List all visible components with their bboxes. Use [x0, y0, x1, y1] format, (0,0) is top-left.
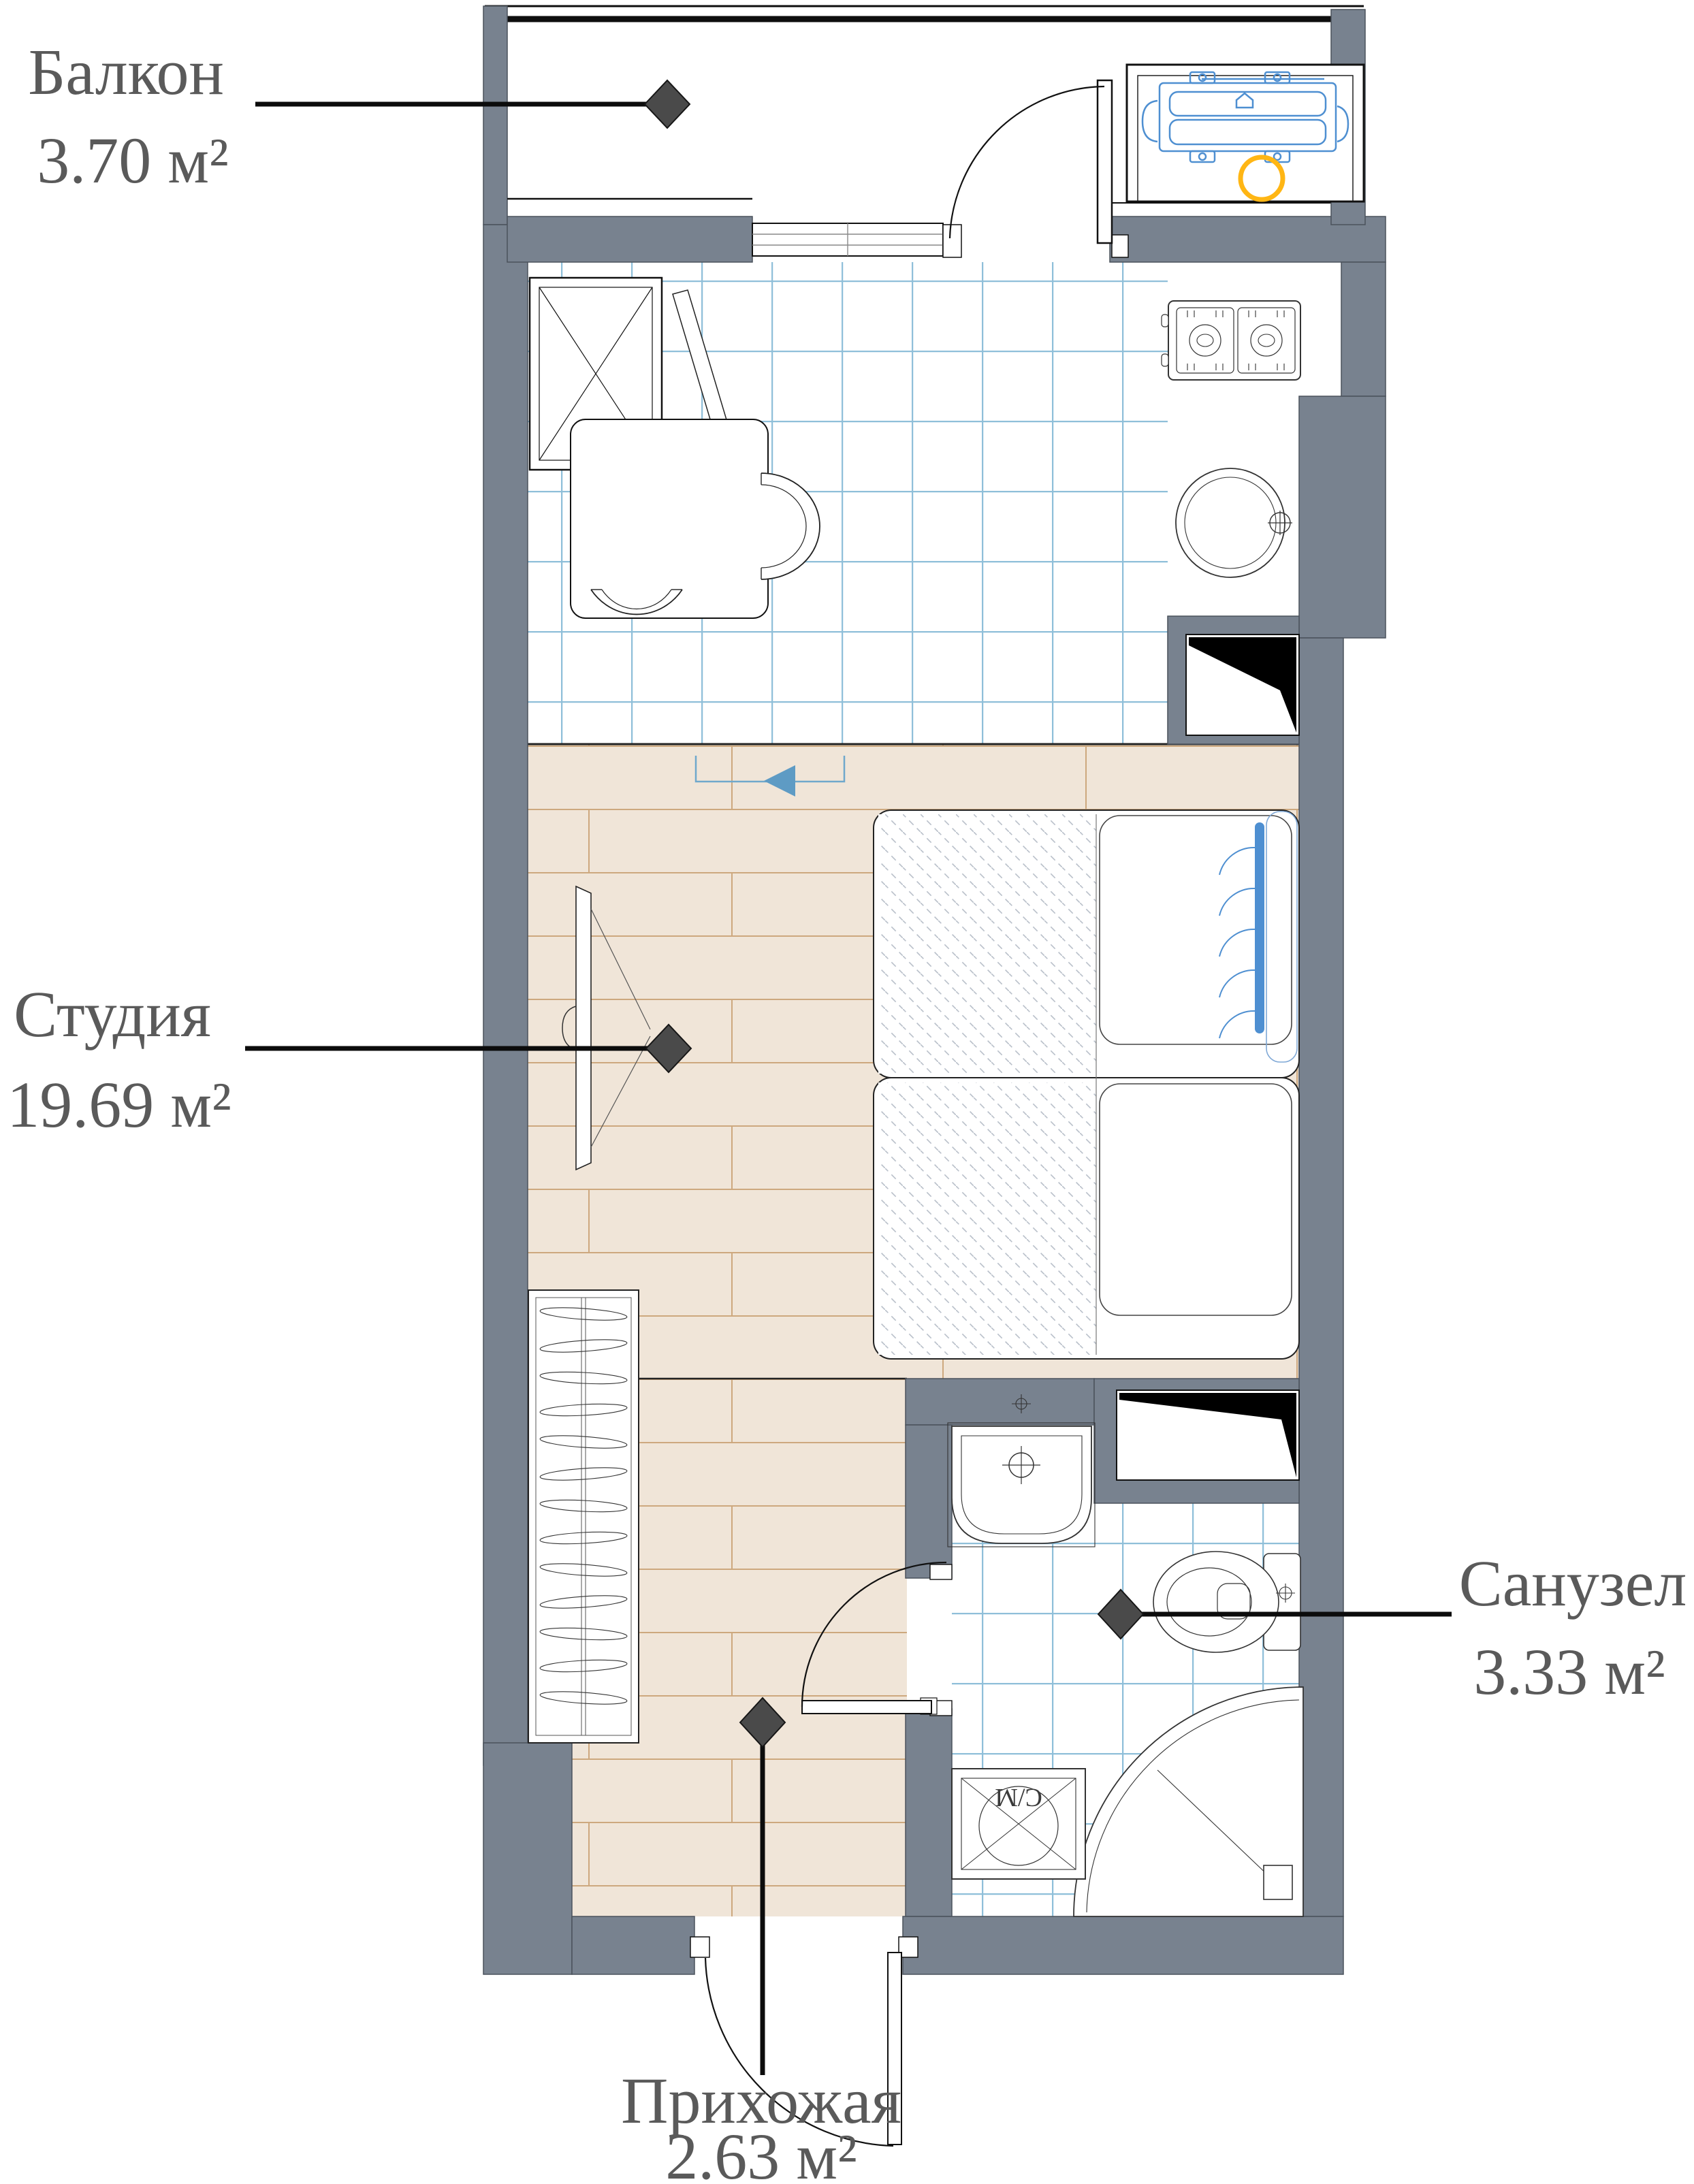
wall-left-balcony [483, 6, 507, 225]
kitchen-vent-shaft-symbol [1186, 635, 1299, 735]
wall-right-main [1299, 638, 1343, 1916]
wall-right-kitchen [1341, 262, 1386, 396]
balcony-label: Балкон [28, 35, 224, 108]
bathroom-label: Санузел [1459, 1547, 1687, 1620]
bathroom-door-jamb-top [930, 1564, 952, 1579]
floor-plan-page: С/М Балкон 3.70 м² Студия 19.69 м² Сануз [0, 0, 1694, 2184]
bathroom-top-wall [906, 1379, 1094, 1425]
mattress-hatch-top [878, 814, 1096, 1074]
balcony-door-leaf [1098, 80, 1112, 243]
wall-right-pilaster [1299, 396, 1386, 638]
bathroom-left-wall-lower [906, 1709, 952, 1916]
studio-area: 19.69 м² [7, 1068, 231, 1141]
wall-left-main [483, 225, 528, 1765]
blue-throw-bar [1255, 822, 1264, 1033]
kitchen-table [571, 419, 768, 618]
bed [874, 810, 1299, 1359]
balcony-door-jamb-left [943, 225, 961, 257]
balcony-window [752, 223, 943, 256]
bathroom-left-wall-upper [906, 1425, 952, 1578]
bathroom-door-leaf [802, 1701, 931, 1714]
washing-machine: С/М [952, 1769, 1085, 1879]
balcony-area: 3.70 м² [37, 124, 229, 197]
studio-label: Студия [14, 978, 211, 1050]
balcony-marker [645, 80, 690, 128]
balcony-door-swing-arc [950, 86, 1104, 238]
toilet [1153, 1552, 1300, 1652]
wall-left-bottom-block [483, 1743, 572, 1974]
bottom-wall-left [572, 1916, 694, 1974]
entrance-jamb-left [690, 1937, 709, 1957]
floor-plan: С/М Балкон 3.70 м² Студия 19.69 м² Сануз [0, 0, 1694, 2184]
wall-under-balcony [507, 216, 752, 262]
kitchen-sink [1176, 468, 1292, 577]
balcony-railing [485, 6, 1364, 19]
washing-machine-label: С/М [995, 1783, 1042, 1812]
mattress-hatch-bottom [878, 1082, 1096, 1355]
stove [1162, 301, 1300, 380]
wardrobe [528, 1290, 639, 1743]
hallway-area: 2.63 м² [665, 2120, 857, 2184]
pillow-bottom [1100, 1084, 1292, 1315]
bathroom-area: 3.33 м² [1473, 1635, 1665, 1708]
ac-niche-box [1127, 65, 1364, 202]
balcony-door [943, 80, 1128, 257]
bottom-wall-right [903, 1916, 1343, 1974]
bathroom-vent-shaft-symbol [1117, 1390, 1299, 1480]
balcony-door-jamb-right [1112, 235, 1128, 257]
